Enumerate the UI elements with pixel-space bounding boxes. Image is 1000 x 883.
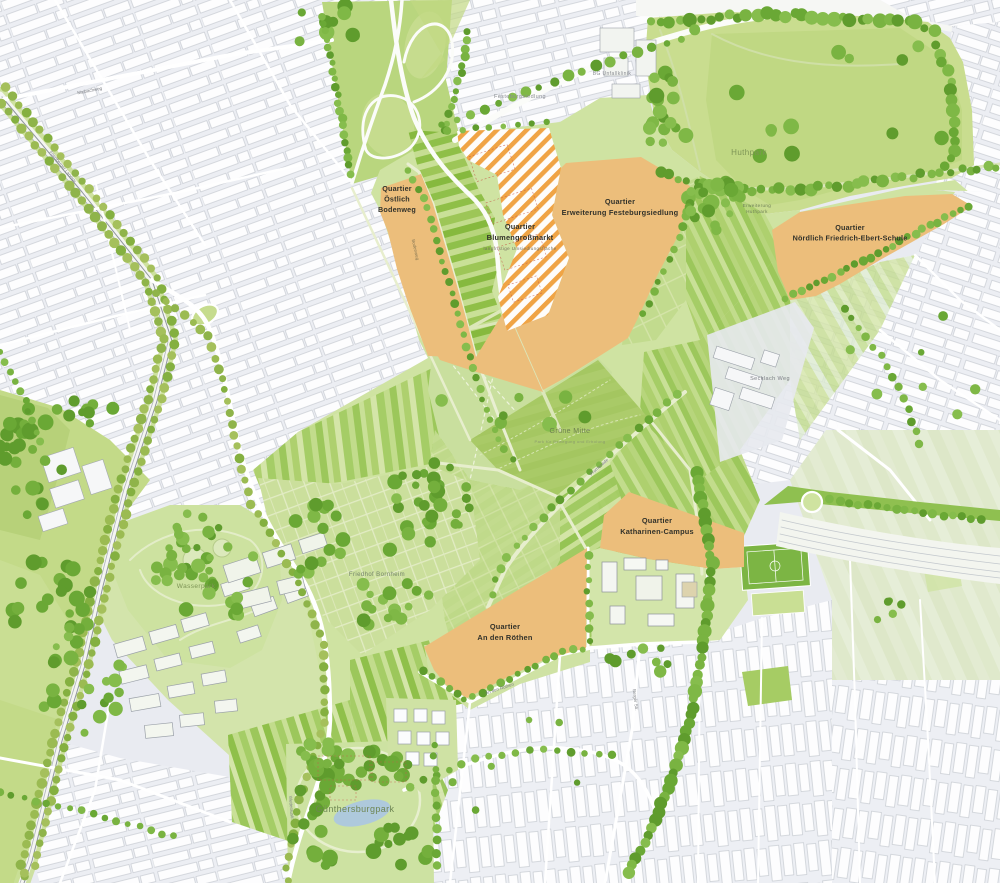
svg-text:Grüne Mitte: Grüne Mitte [550, 428, 591, 435]
svg-text:Secklach Weg: Secklach Weg [750, 376, 790, 382]
svg-text:Günthersburgpark: Günthersburgpark [316, 804, 395, 814]
svg-text:Huthpark: Huthpark [731, 148, 767, 157]
svg-text:langfristige Umsiedlungsfläche: langfristige Umsiedlungsfläche [483, 246, 556, 251]
svg-text:BG Unfallklinik: BG Unfallklinik [593, 71, 632, 77]
svg-text:Friedhof Bornheim: Friedhof Bornheim [349, 572, 405, 578]
svg-text:Festeburgsiedlung: Festeburgsiedlung [494, 94, 546, 100]
svg-text:Park für Bewegung und Erholung: Park für Bewegung und Erholung [535, 439, 606, 444]
svg-text:Wasserpark: Wasserpark [177, 583, 216, 590]
svg-text:ErweiterungHuthpark: ErweiterungHuthpark [743, 203, 772, 214]
